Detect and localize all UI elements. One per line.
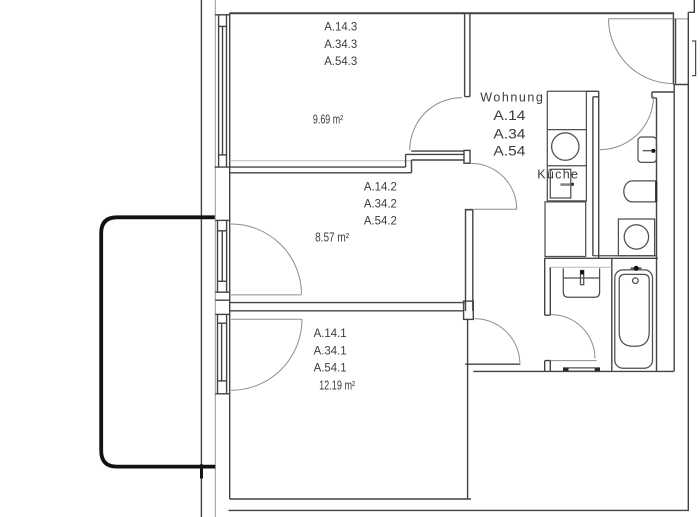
svg-text:A.34.1: A.34.1 bbox=[314, 343, 347, 357]
svg-text:A.54.2: A.54.2 bbox=[364, 213, 397, 227]
svg-text:A.54.3: A.54.3 bbox=[324, 54, 357, 68]
svg-text:A.34: A.34 bbox=[493, 125, 525, 141]
svg-text:A.14.2: A.14.2 bbox=[364, 179, 397, 193]
svg-text:A.34.2: A.34.2 bbox=[364, 196, 397, 210]
svg-text:9.69 m²: 9.69 m² bbox=[313, 112, 343, 126]
svg-text:A.34.3: A.34.3 bbox=[324, 37, 357, 51]
svg-text:A.54: A.54 bbox=[493, 143, 525, 159]
svg-text:8.57 m²: 8.57 m² bbox=[315, 231, 349, 245]
svg-text:Küche: Küche bbox=[537, 167, 579, 181]
svg-text:A.14.1: A.14.1 bbox=[314, 326, 347, 340]
svg-text:A.14: A.14 bbox=[493, 107, 525, 123]
svg-text:A.54.1: A.54.1 bbox=[314, 361, 347, 375]
svg-text:A.14.3: A.14.3 bbox=[324, 20, 357, 34]
svg-text:Wohnung: Wohnung bbox=[480, 90, 544, 104]
svg-text:12.19 m²: 12.19 m² bbox=[319, 379, 355, 393]
